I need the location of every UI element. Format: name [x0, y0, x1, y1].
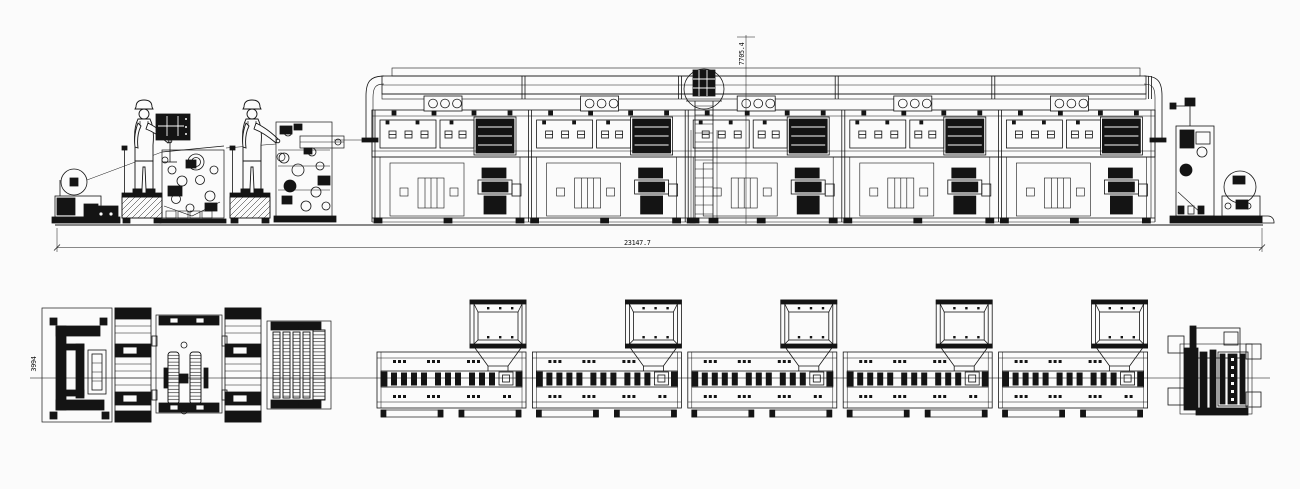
oven-modules-elevation — [372, 76, 1151, 223]
operator-2 — [241, 100, 280, 193]
elevation-view: 7705.4 23147.7 — [52, 35, 1274, 252]
oven-module-elevation — [842, 76, 995, 223]
length-dimension-text: 23147.7 — [624, 239, 651, 247]
coater-2-plan — [267, 321, 331, 409]
oven-module-plan — [688, 300, 837, 417]
oven-module-plan — [377, 300, 526, 417]
cad-drawing-sheet: 7705.4 23147.7 3994 — [0, 0, 1300, 489]
walkway-plan-2 — [225, 308, 261, 422]
rewinder-elevation — [1170, 98, 1274, 223]
web-path — [87, 140, 366, 180]
access-tower — [684, 69, 724, 223]
oven-module-elevation — [372, 76, 525, 223]
unwinder-elevation — [52, 169, 120, 223]
plan-view: 3994 — [30, 300, 1270, 422]
ladder-rungs — [695, 106, 713, 214]
height-dimension-text: 7705.4 — [738, 42, 746, 65]
oven-module-elevation — [685, 76, 838, 223]
oven-module-plan — [999, 300, 1148, 417]
walkway-plan-1 — [115, 308, 151, 422]
oven-module-elevation — [998, 76, 1151, 223]
oven-module-elevation — [529, 76, 682, 223]
rewinder-plan — [1168, 326, 1261, 415]
coater-1-plan — [152, 315, 227, 414]
width-dimension: 3994 — [30, 356, 38, 371]
oven-module-plan — [843, 300, 992, 417]
unwinder-plan — [42, 308, 112, 422]
height-dimension: 7705.4 — [737, 35, 755, 224]
oven-module-plan — [532, 300, 681, 417]
coater-2-elevation — [274, 122, 344, 222]
overall-length-dimension: 23147.7 — [54, 228, 1265, 252]
control-panel — [156, 114, 190, 162]
oven-modules-plan — [377, 300, 1148, 417]
width-dimension-text: 3994 — [30, 356, 38, 371]
